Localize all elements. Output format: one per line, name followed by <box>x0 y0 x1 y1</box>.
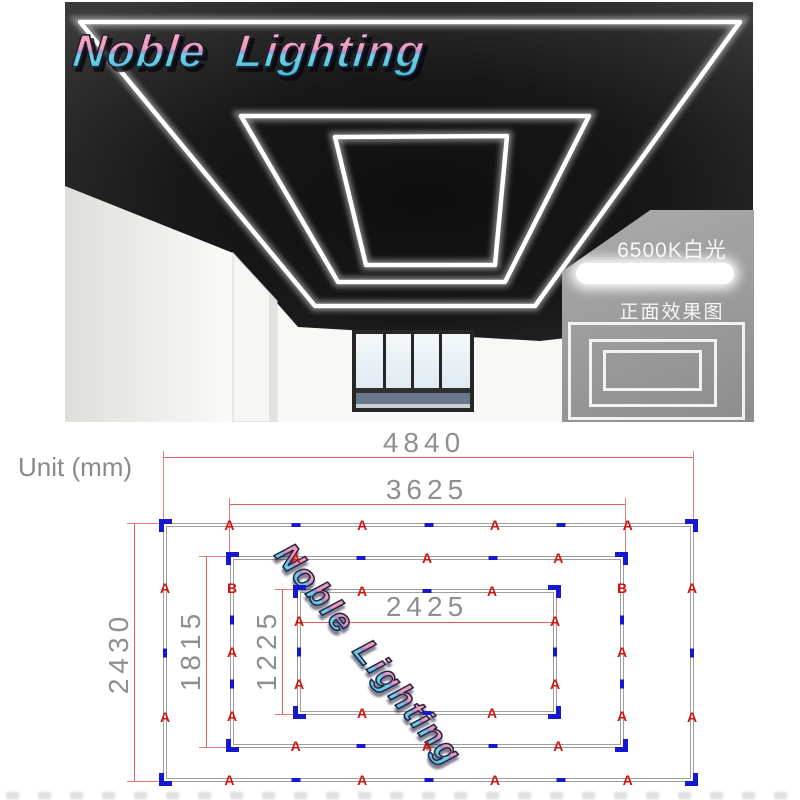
unit-label: Unit (mm) <box>18 452 132 483</box>
edge-dash <box>291 523 300 527</box>
segment-label-a: A <box>227 709 237 723</box>
extension-line <box>163 451 164 523</box>
dimension-value-1815: 1815 <box>175 609 207 691</box>
dimension-value-1225: 1225 <box>251 609 283 691</box>
segment-label-a: A <box>490 773 500 787</box>
edge-dash <box>291 778 300 782</box>
corner-connector <box>293 706 306 719</box>
edge-dash <box>620 616 624 625</box>
led-glow-bar <box>576 263 734 284</box>
segment-label-a: A <box>487 706 497 720</box>
edge-dash <box>357 556 366 560</box>
segment-label-a: A <box>550 614 560 628</box>
front-view-label: 正面效果图 <box>592 297 752 324</box>
segment-label-a: A <box>687 710 697 724</box>
corner-connector <box>159 519 172 532</box>
segment-label-a: A <box>224 518 234 532</box>
room-render-photo: Noble Lighting 6500K白光 正面效果图 <box>65 2 753 422</box>
segment-label-a: A <box>617 645 627 659</box>
segment-label-a: A <box>357 706 367 720</box>
segment-label-a: A <box>224 773 234 787</box>
corner-connector <box>226 739 239 752</box>
edge-dash <box>557 778 566 782</box>
edge-dash <box>424 778 433 782</box>
dimension-value-2430: 2430 <box>103 612 135 694</box>
segment-label-a: A <box>160 581 170 595</box>
segment-label-a: A <box>291 551 301 565</box>
dimension-value-4840: 4840 <box>383 427 465 459</box>
front-view-icon-middle <box>589 339 717 407</box>
edge-dash <box>297 648 301 657</box>
edge-dash <box>620 680 624 689</box>
edge-dash <box>424 523 433 527</box>
segment-label-a: A <box>687 581 697 595</box>
corner-connector <box>615 739 628 752</box>
front-view-icon <box>568 322 745 420</box>
segment-label-a: A <box>291 739 301 753</box>
segment-label-a: A <box>553 551 563 565</box>
edge-dash <box>488 556 497 560</box>
brand-logo: Noble Lighting <box>70 24 506 78</box>
edge-dash <box>230 680 234 689</box>
corner-connector <box>159 773 172 786</box>
segment-label-a: A <box>550 677 560 691</box>
segment-label-a: A <box>422 551 432 565</box>
segment-label-b: B <box>227 581 237 595</box>
edge-dash <box>553 648 557 657</box>
column-shade <box>269 293 277 422</box>
segment-label-a: A <box>617 709 627 723</box>
segment-label-a: A <box>357 584 367 598</box>
edge-dash <box>357 744 366 748</box>
segment-label-a: A <box>623 773 633 787</box>
extension-line <box>693 451 694 523</box>
corner-connector <box>548 585 561 598</box>
dimension-value-2425: 2425 <box>386 591 468 623</box>
corner-connector <box>685 773 698 786</box>
segment-label-a: A <box>357 773 367 787</box>
segment-label-a: A <box>490 518 500 532</box>
color-temp-label: 6500K白光 <box>592 234 752 264</box>
corner-connector <box>685 519 698 532</box>
corner-connector <box>226 552 239 565</box>
corner-connector <box>293 585 306 598</box>
segment-label-a: A <box>160 710 170 724</box>
segment-label-a: A <box>623 518 633 532</box>
edge-dash <box>423 589 432 593</box>
product-image: Noble Lighting 6500K白光 正面效果图 Unit (mm) 4… <box>0 0 800 800</box>
edge-dash <box>230 616 234 625</box>
edge-dash <box>488 744 497 748</box>
corner-connector <box>548 706 561 719</box>
edge-dash <box>690 648 694 657</box>
edge-dash <box>557 523 566 527</box>
segment-label-a: A <box>422 739 432 753</box>
segment-label-a: A <box>294 677 304 691</box>
bottom-artifact-strip <box>6 792 794 799</box>
edge-dash <box>423 711 432 715</box>
window <box>352 330 474 412</box>
segment-label-a: A <box>553 739 563 753</box>
front-view-icon-inner <box>603 350 702 391</box>
segment-label-a: A <box>294 614 304 628</box>
edge-dash <box>163 648 167 657</box>
segment-label-a: A <box>357 518 367 532</box>
dimension-value-3625: 3625 <box>386 474 468 506</box>
segment-label-b: B <box>617 581 627 595</box>
segment-label-a: A <box>487 584 497 598</box>
segment-label-a: A <box>227 645 237 659</box>
corner-connector <box>615 552 628 565</box>
